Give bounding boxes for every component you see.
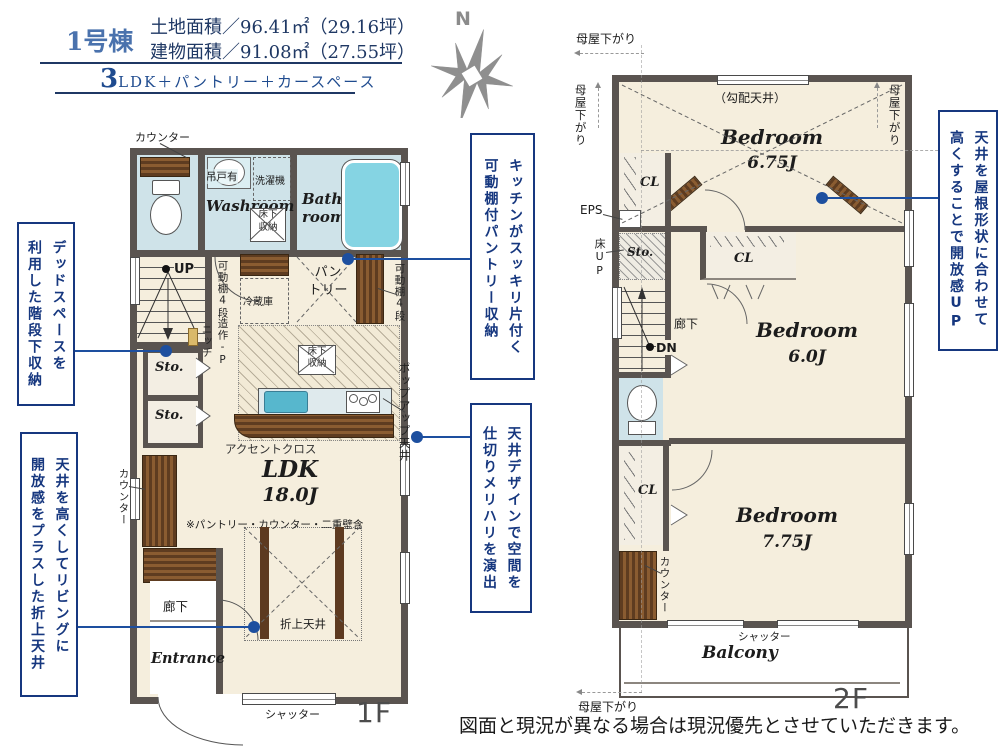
- layout-summary-number: 3: [100, 64, 118, 94]
- window: [242, 693, 336, 705]
- counter-left-1f: [142, 455, 177, 547]
- callout-dot: [160, 345, 172, 357]
- moya-right-label: 母屋下がり: [888, 84, 901, 164]
- floor1-big-label: 1F: [356, 696, 392, 729]
- hallway-label-1f: 廊下: [163, 596, 188, 615]
- closet2-label: CL: [734, 251, 754, 266]
- annotation-stair-storage: デッドスペースを 利用した階段下収納: [17, 222, 75, 406]
- window: [717, 75, 809, 85]
- floorplan-page: 1号棟 土地面積／96.41㎡（29.16坪） 建物面積／91.08㎡（27.5…: [0, 0, 1000, 750]
- floor1-plan: 吊戸有 洗濯機 Washroom 床下 収納 Bath room UP 可動棚4…: [130, 148, 408, 704]
- toilet-tank-icon: [152, 180, 180, 195]
- annotation-ceiling-design: 天井デザインで空間を 仕切りメリハリを演出: [470, 403, 532, 613]
- moya-top-arrow-line: [580, 53, 644, 54]
- annotation-text: 天井を屋根形状に合わせて 高くすることで開放感UP: [944, 130, 993, 332]
- bedroom1-size: 6.75J: [707, 153, 837, 173]
- up-label: UP: [174, 262, 194, 277]
- storage2-label: Sto.: [155, 408, 183, 423]
- moya-vertical-line: [641, 45, 642, 693]
- shutter-label-1f: シャッター: [265, 706, 320, 722]
- bedroom2-name: Bedroom: [732, 318, 882, 342]
- popup-ceiling-label: ポップアップ天井: [398, 362, 411, 472]
- entrance-door-gap: [158, 694, 243, 704]
- bedroom1-name: Bedroom: [707, 125, 837, 149]
- moya-ridge-line: [641, 150, 973, 151]
- counter-2f-label: カウンター: [658, 556, 670, 618]
- annotation-roof-ceiling: 天井を屋根形状に合わせて 高くすることで開放感UP: [938, 110, 998, 351]
- header-rule-bottom: [55, 92, 355, 94]
- floor2-plan: （勾配天井） Bedroom 6.75J CL Sto. DN 廊下 CL Be…: [612, 75, 912, 705]
- arrow-left-icon: [576, 689, 582, 695]
- disclaimer-text: 図面と現況が異なる場合は現況優先とさせていただきます。: [459, 711, 970, 738]
- moya-left-arrow-line: [598, 88, 599, 128]
- hallway-divider: [150, 620, 216, 622]
- kitchen-counter-front: [234, 414, 394, 438]
- annotation-coffered-ceiling: 天井を高くしてリビングに 開放感をプラスした折上天井: [20, 432, 78, 697]
- washing-machine-label: 洗濯機: [255, 172, 285, 187]
- window: [904, 210, 914, 267]
- bathroom-label: Bath room: [302, 190, 346, 226]
- window: [612, 287, 622, 339]
- window: [400, 162, 410, 206]
- hanger-rail: [624, 452, 635, 540]
- wall-segment: [198, 155, 205, 250]
- bedroom3-size: 7.75J: [712, 532, 862, 552]
- stove-burner-icon: [349, 394, 358, 403]
- wall-segment: [665, 232, 671, 378]
- wall-segment: [663, 446, 669, 551]
- kitchen-sink-icon: [264, 391, 308, 413]
- window: [130, 257, 140, 305]
- counter-2f: [619, 551, 657, 620]
- annotation-text: 天井デザインで空間を 仕切りメリハリを演出: [477, 426, 526, 591]
- counter-top-label: カウンター: [135, 129, 190, 145]
- building-number: 1号棟: [66, 22, 133, 58]
- ldk-size: 18.0J: [238, 484, 342, 506]
- wall-segment: [216, 548, 223, 694]
- callout-line: [348, 258, 470, 260]
- bathtub-icon: [342, 160, 402, 250]
- land-area-text: 土地面積／96.41㎡（29.16坪）: [150, 13, 415, 39]
- compass-north-label: N: [455, 8, 471, 30]
- toilet-tank-icon: [628, 421, 656, 435]
- arrow-up-icon: [874, 82, 880, 88]
- callout-line: [822, 197, 938, 199]
- callout-dot: [816, 192, 828, 204]
- moya-top-label: 母屋下がり: [576, 30, 636, 47]
- builtin-p-label: 造作-P: [216, 318, 228, 370]
- window: [400, 552, 410, 604]
- annotation-text: デッドスペースを 利用した階段下収納: [22, 240, 71, 389]
- moya-right-arrow-line: [877, 88, 878, 128]
- window: [130, 478, 140, 520]
- counter-toilet: [140, 157, 190, 177]
- stove-burner-icon: [368, 394, 377, 403]
- sloped-ceiling-label: （勾配天井）: [714, 89, 786, 106]
- entrance-label: Entrance: [151, 650, 225, 667]
- toilet-bowl-icon: [627, 385, 657, 421]
- building-area-text: 建物面積／91.08㎡（27.55坪）: [150, 38, 415, 64]
- ldk-name: LDK: [238, 456, 342, 483]
- layout-summary-rest: LDK＋パントリー＋カースペース: [118, 73, 376, 91]
- closet1-label: CL: [640, 175, 660, 190]
- wall-segment: [665, 153, 671, 226]
- layout-summary: 3LDK＋パントリー＋カースペース: [100, 64, 377, 94]
- hanging-cupboard-label: 吊戸有: [206, 169, 238, 184]
- floor-up-label: 床UP: [593, 238, 605, 282]
- callout-dot: [248, 621, 260, 633]
- ceiling-beam: [335, 527, 344, 639]
- bedroom2-size: 6.0J: [732, 347, 882, 367]
- compass-icon: [430, 18, 515, 118]
- movable-shelf-right-label: 可動棚4段: [393, 263, 405, 341]
- annotation-text: 天井を高くしてリビングに 開放感をプラスした折上天井: [25, 457, 74, 672]
- stove-burner-icon: [359, 397, 368, 406]
- stairs-2f: [619, 281, 665, 375]
- moya-left-label: 母屋下がり: [574, 84, 587, 164]
- annotation-text: キッチンがスッキリ片付く 可動棚付パントリー収納: [478, 158, 527, 356]
- underfloor-storage-kitchen: 床下 収納: [298, 345, 336, 375]
- eps-label: EPS: [580, 203, 602, 217]
- annotation-pantry: キッチンがスッキリ片付く 可動棚付パントリー収納: [470, 133, 535, 380]
- niche-block: [188, 328, 198, 346]
- pantry-label: パン トリー: [300, 264, 356, 299]
- shutter-label-2f: シャッター: [738, 629, 791, 644]
- refrigerator-label: 冷蔵庫: [243, 293, 273, 308]
- window: [904, 503, 914, 555]
- toilet-bowl-icon: [150, 195, 182, 235]
- window: [904, 303, 914, 397]
- callout-dot: [342, 253, 354, 265]
- callout-line: [70, 350, 166, 352]
- counter-left-label: カウンター: [117, 468, 129, 534]
- hallway-label-2f: 廊下: [674, 315, 698, 332]
- hanger-rail: [710, 236, 784, 247]
- dn-label: DN: [656, 340, 677, 355]
- accent-cloth-label: アクセントクロス: [225, 441, 316, 457]
- callout-line: [417, 436, 470, 438]
- movable-shelf-top: [240, 254, 289, 276]
- wall-segment: [669, 438, 905, 444]
- ceiling-beam: [260, 527, 269, 639]
- bedroom3-name: Bedroom: [712, 503, 862, 527]
- arrow-left-icon: [574, 50, 580, 56]
- balcony-label: Balcony: [702, 643, 778, 663]
- storage1-label: Sto.: [155, 360, 183, 375]
- shoe-cabinet: [143, 548, 218, 583]
- underfloor-storage-washroom: 床下 収納: [250, 208, 286, 242]
- callout-dot: [411, 431, 423, 443]
- moya-bottom-arrow-line: [582, 692, 642, 693]
- callout-line: [73, 626, 254, 628]
- wall-segment: [619, 372, 671, 378]
- coffered-ceiling-label: 折上天井: [278, 616, 328, 632]
- arrow-up-icon: [595, 82, 601, 88]
